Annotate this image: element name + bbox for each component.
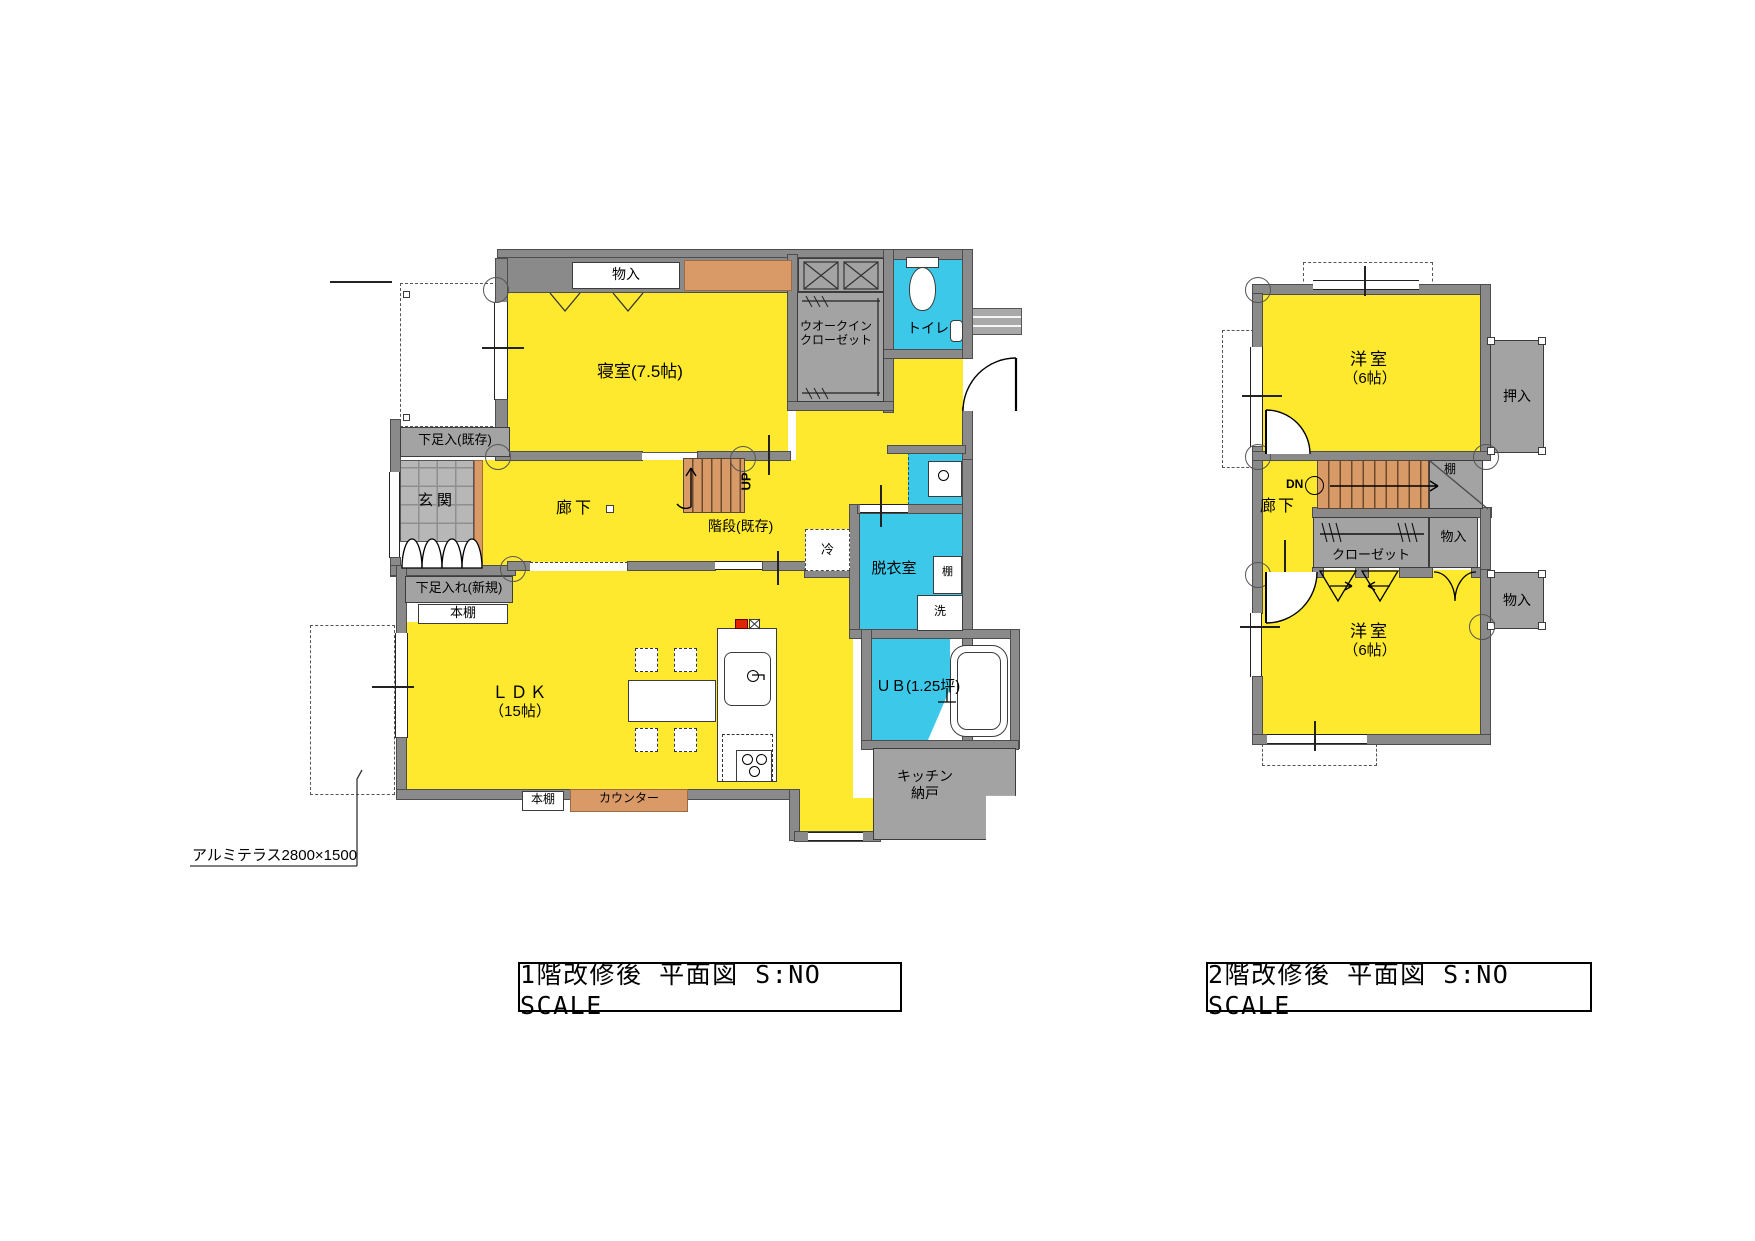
fridge-label: 冷 (805, 543, 850, 558)
post-square (1487, 337, 1495, 345)
wall-segment (884, 350, 965, 358)
shoe-cabinet-new-label: 下足入れ(新規) (405, 581, 513, 596)
shoe-cabinet-existing-label: 下足入(既存) (400, 433, 510, 448)
dining-chair (674, 648, 697, 672)
corridor-label: 廊下 (556, 500, 594, 518)
wall-segment (1313, 568, 1323, 577)
staircase-2f (1317, 460, 1429, 509)
post-square (1487, 570, 1495, 578)
wall-segment (628, 562, 715, 570)
sink-faucet (747, 670, 759, 682)
wall-segment (805, 570, 852, 577)
oshiire-label: 押入 (1490, 388, 1544, 404)
stove-alert-mark (735, 619, 748, 629)
monoire-top-label: 物入 (572, 266, 680, 282)
dimension-tick (1242, 395, 1282, 397)
wall-segment (1253, 677, 1262, 744)
entry-porch-steps (972, 308, 1022, 335)
window (1267, 734, 1367, 744)
window (494, 302, 508, 400)
column-marker (1469, 614, 1495, 640)
counter-label: カウンター (570, 792, 688, 806)
wic-label-line2: クローゼット (800, 334, 872, 348)
wic-label-line1: ウオークイン (800, 320, 872, 334)
porch-post (403, 291, 410, 298)
wall-segment (1313, 508, 1491, 517)
stair-existing-label: 階段(既存) (708, 518, 773, 534)
extension-line (330, 281, 392, 283)
wall-segment (963, 250, 972, 358)
stove-burner (756, 754, 767, 765)
window (860, 504, 908, 513)
wall-segment (1481, 570, 1490, 744)
window (1250, 613, 1262, 677)
dining-chair (635, 728, 658, 752)
wall-segment (862, 630, 871, 748)
column-marker (500, 556, 526, 582)
post-square (1538, 570, 1546, 578)
toilet-label: トイレ (893, 320, 963, 336)
stove-burner (749, 766, 760, 777)
dn-circle (1305, 476, 1324, 495)
wall-segment (1356, 568, 1368, 577)
shelf-label: 棚 (933, 566, 962, 579)
floor1-title: 1階改修後 平面図 S:NO SCALE (520, 955, 900, 1020)
floor2-title: 2階改修後 平面図 S:NO SCALE (1208, 955, 1590, 1020)
column-marker (1245, 444, 1271, 470)
wall-segment (397, 738, 406, 798)
column-marker (1245, 562, 1271, 588)
floor1-title-box: 1階改修後 平面図 S:NO SCALE (518, 962, 902, 1012)
bathtub-inner (957, 652, 1001, 730)
stair-shelf-label: 棚 (1444, 463, 1456, 477)
floor2-title-box: 2階改修後 平面図 S:NO SCALE (1206, 962, 1592, 1012)
genkan-label: 玄関 (400, 492, 474, 509)
wall-segment (391, 420, 400, 472)
dimension-tick (1364, 266, 1366, 296)
ldk-label-line1: ＬＤＫ (455, 683, 585, 703)
wall-segment (1481, 508, 1490, 570)
corridor-2f-label: 廊下 (1260, 498, 1296, 516)
column-marker (1245, 277, 1271, 303)
crossed-duct-boxes (798, 258, 884, 292)
dining-chair (674, 728, 697, 752)
wall-segment (763, 562, 805, 570)
wall-segment (788, 402, 893, 410)
wall-segment (888, 446, 965, 453)
window (808, 832, 863, 841)
kitchen-storage-label-line2: 納戸 (876, 785, 974, 801)
dining-table (628, 680, 716, 722)
post-square (1538, 622, 1546, 630)
western-room-upper-label-line2: （6帖） (1318, 370, 1422, 387)
washer-label: 洗 (917, 605, 963, 619)
wall-segment (1400, 568, 1432, 577)
bookshelf-upper-label: 本棚 (418, 606, 508, 621)
open-ceiling-opening (530, 562, 628, 571)
wall-segment (391, 566, 515, 575)
dimension-tick (1314, 721, 1316, 751)
kitchen-storage-label-line1: キッチン (876, 768, 974, 784)
bookshelf-lower-label: 本棚 (522, 793, 564, 807)
western-room-lower-label-line2: （6帖） (1318, 642, 1422, 659)
porch-post (403, 414, 410, 421)
wall-segment (496, 452, 642, 460)
bedroom-label: 寝室(7.5帖) (540, 362, 740, 382)
ldk-label-line2: （15帖） (455, 703, 585, 720)
column-marker (730, 446, 756, 472)
dimension-tick (777, 551, 779, 585)
western-room-lower-label-line1: 洋室 (1318, 622, 1422, 642)
unit-bath-label: ＵＢ(1.25坪) (876, 678, 960, 695)
wall-segment (1253, 452, 1490, 460)
window (1250, 347, 1263, 447)
aluminum-terrace-dashed-outline (310, 625, 395, 795)
wall-segment (862, 741, 1018, 749)
entry-porch-dashed-outline (400, 283, 508, 427)
wall-segment (1253, 447, 1262, 613)
window (389, 472, 400, 558)
dimension-tick (880, 485, 882, 527)
wood-deck-strip (684, 260, 792, 291)
floor-plan-canvas: 物入 寝室(7.5帖) ウオークイン クローゼット トイレ 下足入(既存) 玄関… (0, 0, 1755, 1241)
genkan-step-strip (474, 460, 483, 566)
dining-chair (635, 648, 658, 672)
closet-label: クローゼット (1315, 548, 1427, 563)
wall-segment (850, 630, 1018, 638)
monoire-upper-label: 物入 (1429, 530, 1478, 545)
post-square (1538, 447, 1546, 455)
up-label: UP (740, 472, 755, 490)
wall-segment (1481, 285, 1490, 460)
balcony-dashed-outline-bottom (1262, 744, 1377, 766)
dimension-tick (482, 347, 524, 349)
dimension-tick (768, 435, 770, 475)
dimension-tick (1240, 626, 1280, 628)
western-room-upper-label-line1: 洋室 (1318, 350, 1422, 370)
toilet-bowl (909, 267, 936, 311)
corridor-symbol-square (606, 505, 614, 513)
terrace-note-label: アルミテラス2800×1500 (192, 847, 357, 864)
monoire-lower-label: 物入 (1490, 592, 1544, 608)
window (715, 561, 763, 570)
dn-label: DN (1286, 478, 1303, 492)
wall-segment (1011, 630, 1019, 748)
kitchen-floor (795, 798, 875, 834)
dimension-tick (372, 686, 414, 688)
range-switch-box (749, 619, 760, 629)
column-marker (483, 277, 509, 303)
column-marker (1473, 444, 1499, 470)
dimension-tick (1284, 540, 1286, 576)
window (1313, 280, 1419, 290)
stove-burner (742, 754, 753, 765)
dressing-room-label: 脱衣室 (852, 560, 936, 577)
post-square (1538, 337, 1546, 345)
wall-segment (884, 250, 893, 412)
washbasin-drain (938, 470, 949, 481)
